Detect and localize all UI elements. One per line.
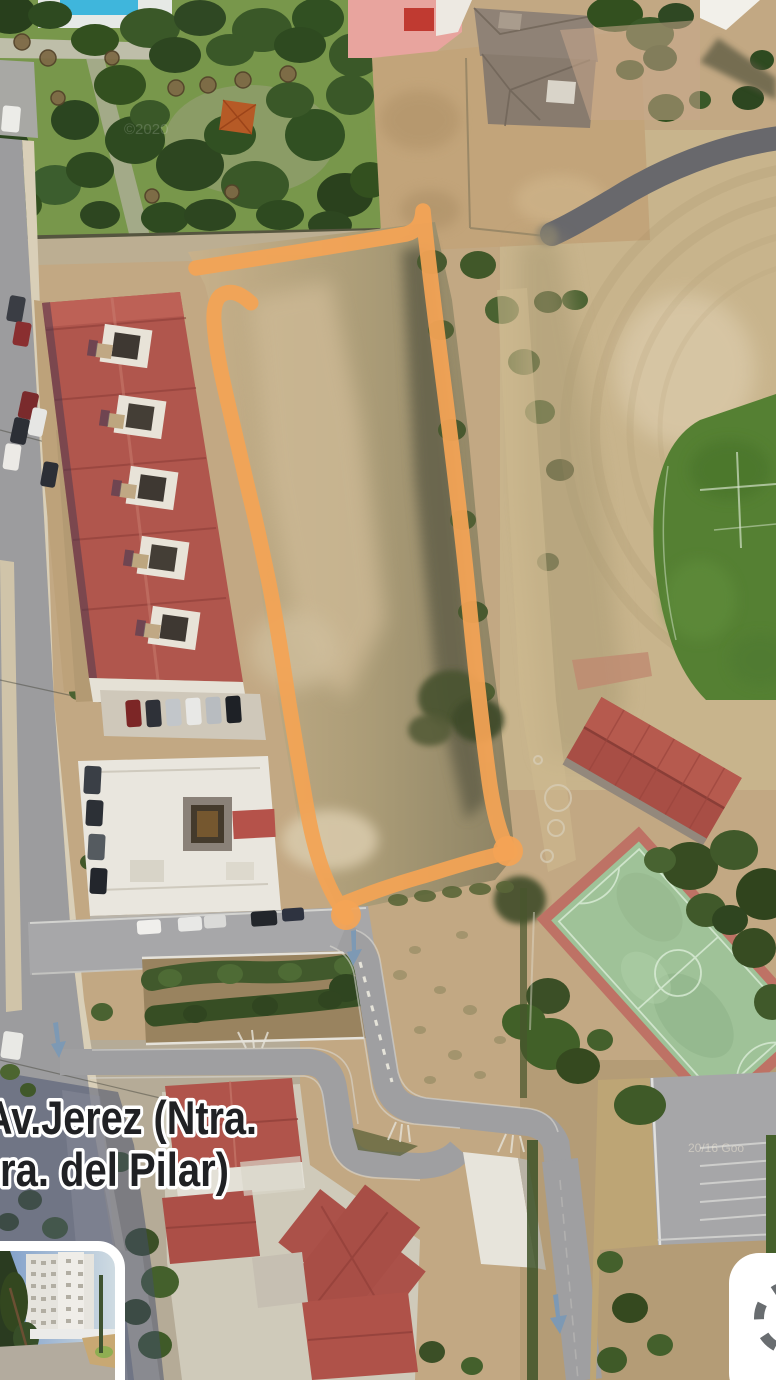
- svg-text:Av.Jerez (Ntra.: Av.Jerez (Ntra.: [0, 1091, 257, 1144]
- svg-text:ra. del Pilar): ra. del Pilar): [0, 1143, 229, 1196]
- svg-text:20/16 Goo: 20/16 Goo: [688, 1141, 744, 1155]
- svg-text:©2020: ©2020: [124, 121, 168, 138]
